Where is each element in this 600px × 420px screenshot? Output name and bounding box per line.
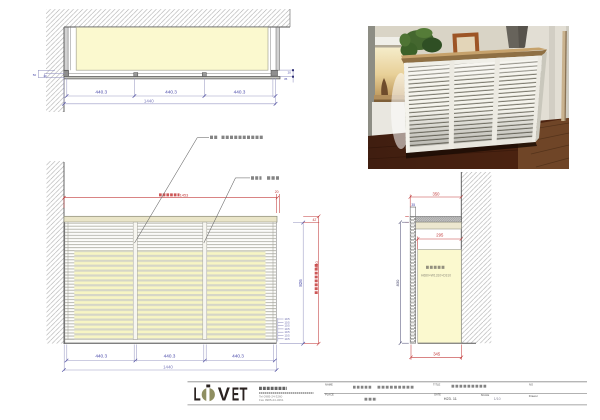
svg-text:NO: NO: [529, 383, 533, 387]
svg-text:345: 345: [433, 351, 441, 356]
svg-text:Drawer: Drawer: [529, 394, 538, 398]
svg-text:SCALE: SCALE: [481, 393, 490, 397]
svg-text:L: L: [194, 385, 201, 405]
svg-text:440.3: 440.3: [164, 353, 176, 358]
svg-text:1440: 1440: [163, 365, 173, 370]
svg-text:E: E: [232, 385, 239, 405]
svg-text:20: 20: [275, 190, 279, 194]
svg-text:1453: 1453: [180, 193, 188, 197]
svg-text:42: 42: [313, 218, 317, 222]
svg-text:830: 830: [395, 279, 400, 286]
svg-text:440.3: 440.3: [234, 89, 246, 94]
svg-text:H680×W1310×D310: H680×W1310×D310: [421, 274, 451, 278]
svg-text:826: 826: [298, 279, 303, 287]
svg-text:NAME: NAME: [325, 382, 333, 386]
svg-text:350: 350: [433, 191, 441, 196]
svg-text:35: 35: [284, 77, 288, 81]
svg-text:PLACE: PLACE: [325, 393, 334, 397]
svg-text:10: 10: [43, 74, 47, 78]
svg-text:10.5: 10.5: [285, 337, 291, 341]
svg-text:50: 50: [33, 73, 37, 77]
svg-text:1/10: 1/10: [494, 397, 501, 401]
svg-text:DATE: DATE: [434, 393, 441, 397]
svg-text:830: 830: [314, 261, 319, 268]
svg-text:35: 35: [411, 203, 415, 207]
svg-text:440.3: 440.3: [95, 353, 107, 358]
svg-text:T: T: [240, 385, 248, 405]
svg-text:295: 295: [436, 233, 444, 238]
svg-text:H23. 11: H23. 11: [444, 397, 457, 401]
svg-text:Fax 0985-24-3261: Fax 0985-24-3261: [259, 398, 284, 402]
svg-text:1440: 1440: [144, 98, 154, 103]
svg-text:440.3: 440.3: [165, 89, 177, 94]
svg-text:V: V: [218, 385, 230, 405]
svg-text:TITLE: TITLE: [433, 382, 441, 386]
svg-text:440.3: 440.3: [95, 89, 107, 94]
svg-text:20: 20: [288, 70, 292, 74]
svg-text:440.3: 440.3: [232, 353, 244, 358]
